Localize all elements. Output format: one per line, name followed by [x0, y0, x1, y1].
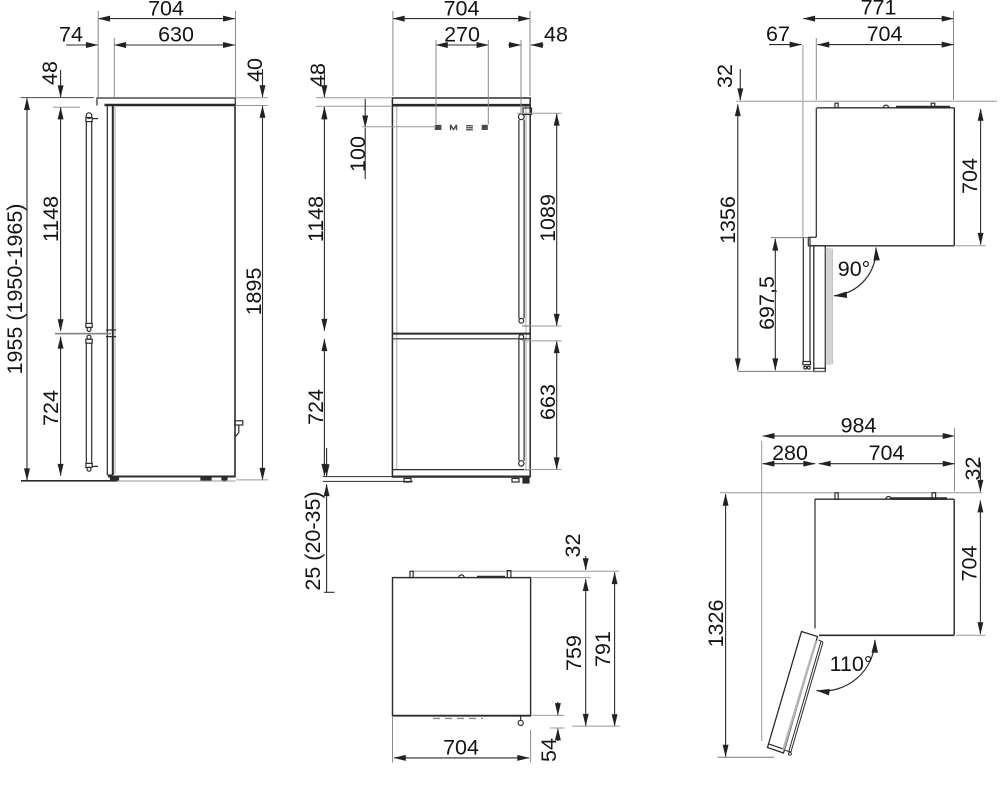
- svg-text:32: 32: [713, 64, 737, 88]
- svg-text:110°: 110°: [830, 652, 873, 676]
- svg-text:1089: 1089: [536, 194, 560, 242]
- svg-text:724: 724: [304, 389, 328, 425]
- svg-text:32: 32: [961, 457, 985, 481]
- svg-text:67: 67: [766, 22, 790, 46]
- svg-text:697,5: 697,5: [755, 276, 779, 330]
- svg-text:40: 40: [243, 58, 267, 82]
- svg-text:724: 724: [39, 390, 63, 426]
- svg-text:74: 74: [59, 23, 83, 47]
- svg-text:1356: 1356: [716, 196, 740, 244]
- svg-text:1148: 1148: [304, 196, 328, 242]
- svg-text:270: 270: [444, 23, 480, 47]
- svg-text:759: 759: [562, 635, 586, 671]
- svg-text:704: 704: [148, 0, 184, 21]
- svg-text:704: 704: [443, 736, 479, 760]
- svg-text:1955 (1950-1965): 1955 (1950-1965): [3, 204, 27, 375]
- svg-text:100: 100: [346, 136, 370, 172]
- svg-text:1895: 1895: [242, 268, 266, 316]
- svg-text:48: 48: [544, 23, 568, 47]
- svg-text:791: 791: [591, 631, 615, 667]
- svg-text:984: 984: [841, 414, 877, 438]
- svg-text:90°: 90°: [838, 257, 871, 281]
- svg-text:54: 54: [537, 738, 561, 762]
- svg-text:704: 704: [444, 0, 480, 21]
- svg-text:25 (20-35): 25 (20-35): [301, 491, 325, 590]
- svg-text:280: 280: [772, 441, 808, 465]
- svg-text:663: 663: [536, 384, 560, 420]
- svg-text:48: 48: [306, 63, 330, 87]
- svg-text:771: 771: [861, 0, 897, 20]
- svg-text:48: 48: [38, 61, 62, 85]
- svg-text:704: 704: [867, 22, 903, 46]
- svg-text:630: 630: [158, 23, 194, 47]
- svg-text:32: 32: [561, 534, 585, 558]
- svg-text:704: 704: [958, 158, 982, 194]
- svg-text:704: 704: [958, 546, 982, 582]
- svg-text:1148: 1148: [39, 196, 63, 242]
- svg-text:704: 704: [869, 441, 905, 465]
- svg-text:1326: 1326: [704, 600, 728, 648]
